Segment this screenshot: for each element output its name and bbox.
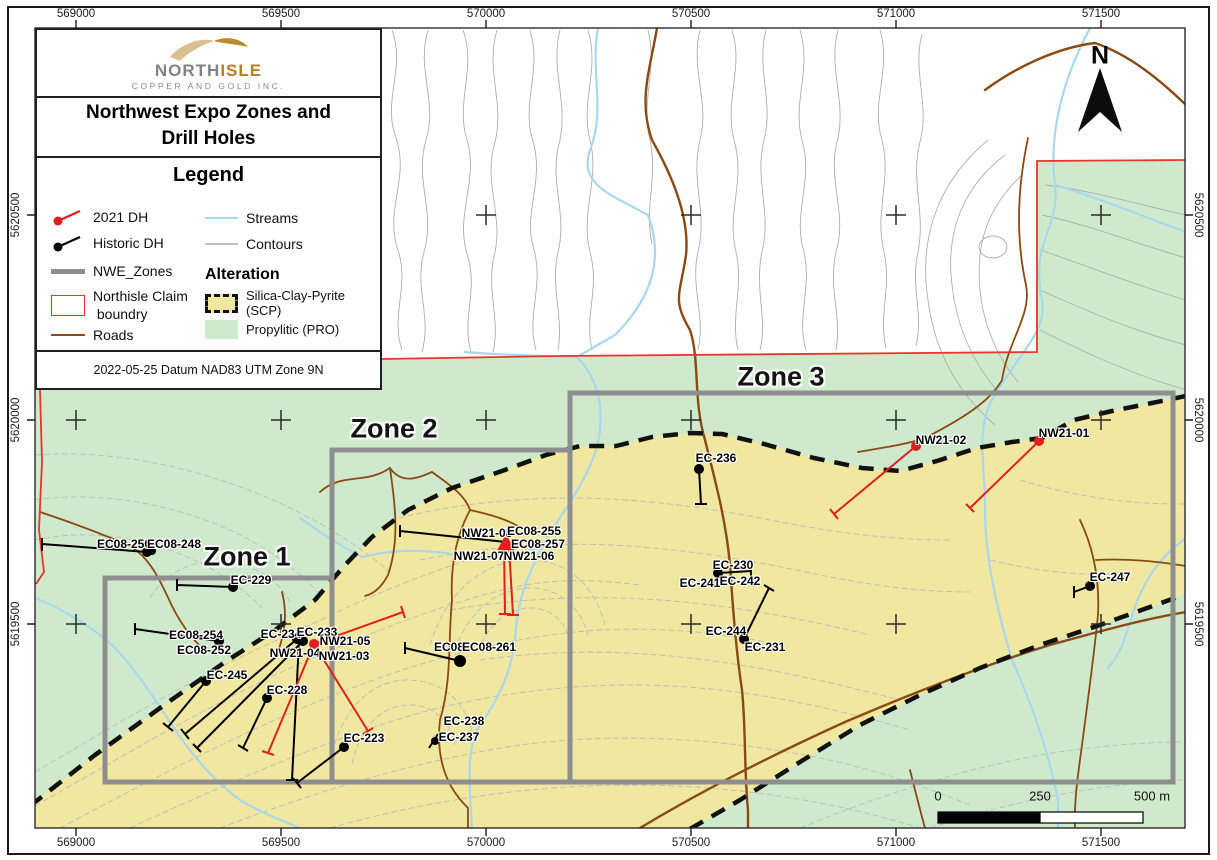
drill-hole-label: EC-231 [745,640,786,654]
divider [37,156,380,158]
drill-hole-label: NW21-01 [1039,426,1090,440]
grid-label-northing: 5620000 [10,398,22,443]
scale-label-0: 0 [934,789,941,804]
drill-hole-label: EC08 [434,640,464,654]
legend-item-2021-dh: 2021 DH [51,207,148,227]
company-logo: NORTHISLE COPPER AND GOLD INC. [37,30,380,96]
legend-item-claim-boundary: Northisle Claim boundry [51,288,188,323]
drill-hole-label: NW21-08 [462,526,513,540]
legend-item-streams: Streams [205,210,298,226]
drill-hole-label: NW21-05 [320,634,371,648]
grid-label-easting: 570000 [467,8,505,20]
grid-label-easting: 570500 [672,8,710,20]
legend-item-scp: Silica-Clay-Pyrite (SCP) [205,288,380,318]
grid-label-easting: 571500 [1082,837,1120,849]
drill-hole-label: NW21-04 [270,646,321,660]
grid-label-easting: 570000 [467,837,505,849]
legend-label: 2021 DH [93,209,148,225]
legend-label: NWE_Zones [93,263,172,279]
drill-hole-label: EC-244 [706,624,747,638]
drill-hole-label: EC08-255 [507,524,561,538]
grid-label-northing: 5620000 [1192,398,1204,443]
drill-hole-label: EC-245 [207,668,248,682]
logo-subtitle: COPPER AND GOLD INC. [132,81,286,91]
drill-hole-label: NW21-07 [454,549,505,563]
grid-label-easting: 571000 [877,837,915,849]
grid-label-northing: 5619500 [1192,602,1204,647]
drill-hole-label: EC-228 [267,683,308,697]
legend-panel: NORTHISLE COPPER AND GOLD INC. Northwest… [35,28,382,352]
logo-bird-icon [168,35,250,61]
grid-label-easting: 571000 [877,8,915,20]
drill-hole-label: NW21-03 [319,649,370,663]
legend-label: Contours [246,236,303,252]
map-figure: 569000 569500 570000 570500 571000 57150… [0,0,1217,860]
legend-item-contours: Contours [205,236,303,252]
legend-label: Roads [93,327,133,343]
legend-label: Silica-Clay-Pyrite (SCP) [246,288,380,318]
drill-hole-label: EC08-248 [147,537,201,551]
scale-bar [938,812,1143,823]
zone-label-2: Zone 2 [350,414,437,445]
drill-hole-label: EC08-252 [177,643,231,657]
drill-hole-label: EC08-254 [169,628,223,642]
grid-label-easting: 569500 [262,837,300,849]
legend-label: Propylitic (PRO) [246,322,339,337]
drill-hole-label: EC08-250 [97,537,151,551]
legend-label: Northisle Claim boundry [93,288,188,323]
drill-hole-label: EC-229 [231,573,272,587]
dh-2021-symbol-icon [51,207,85,227]
drill-hole-label: EC-236 [696,451,737,465]
alteration-heading: Alteration [205,266,375,284]
drill-hole-label: NW21-06 [504,549,555,563]
grid-label-easting: 569000 [57,8,95,20]
legend-item-historic-dh: Historic DH [51,233,164,253]
drill-hole-label: EC08-261 [462,640,516,654]
grid-label-northing: 5620500 [1192,193,1204,238]
grid-label-easting: 569500 [262,8,300,20]
logo-name: NORTHISLE [155,62,262,79]
divider [37,96,380,98]
drill-hole-label: EC-230 [713,558,754,572]
drill-hole-label: EC-242 [720,574,761,588]
legend-item-pro: Propylitic (PRO) [205,320,339,339]
drill-hole-label: EC-234 [261,627,302,641]
datum-text: 2022-05-25 Datum NAD83 UTM Zone 9N [94,363,324,377]
drill-hole-label: EC-247 [1090,570,1131,584]
grid-label-easting: 569000 [57,837,95,849]
legend-label: Streams [246,210,298,226]
legend-item-roads: Roads [51,327,133,343]
north-label: N [1091,42,1109,71]
scale-label-500m: 500 m [1134,789,1170,804]
legend-heading: Legend [37,164,380,187]
drill-hole-label: EC-223 [344,731,385,745]
legend-label: Historic DH [93,235,164,251]
zone-label-1: Zone 1 [203,542,290,573]
grid-label-northing: 5619500 [10,602,22,647]
grid-label-northing: 5620500 [10,193,22,238]
dh-historic-symbol-icon [51,233,85,253]
drill-hole-label: EC-237 [439,730,480,744]
grid-label-easting: 570500 [672,837,710,849]
drill-hole-label: EC-238 [444,714,485,728]
datum-note: 2022-05-25 Datum NAD83 UTM Zone 9N [35,350,382,390]
drill-hole-label: EC-241 [680,576,721,590]
drill-hole-label: NW21-02 [916,433,967,447]
scale-label-250: 250 [1029,789,1051,804]
zone-label-3: Zone 3 [737,362,824,393]
map-title: Northwest Expo Zones and Drill Holes [37,100,380,151]
grid-label-easting: 571500 [1082,8,1120,20]
legend-item-nwe-zones: NWE_Zones [51,263,172,279]
